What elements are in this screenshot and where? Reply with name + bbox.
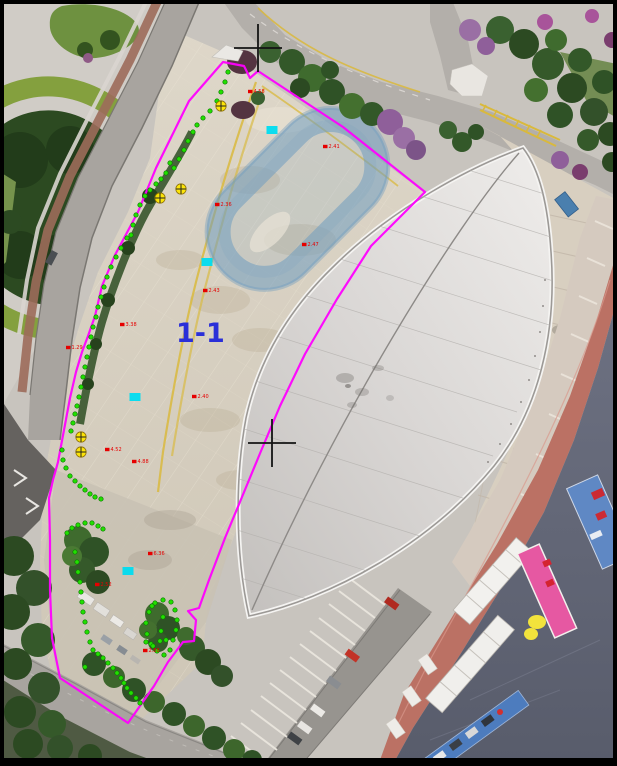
section-label: 1-1 [176, 318, 225, 349]
control-point-marker [155, 193, 165, 203]
survey-dot [119, 246, 123, 250]
survey-dot [164, 638, 168, 642]
survey-dot [79, 385, 83, 389]
survey-dot [83, 665, 87, 669]
survey-dot [125, 236, 129, 240]
survey-dot [173, 608, 177, 612]
survey-dot [81, 375, 85, 379]
survey-dot [88, 492, 92, 496]
survey-dot [105, 275, 109, 279]
cyan-mark [267, 126, 278, 134]
survey-dot [77, 395, 81, 399]
survey-dot [109, 265, 113, 269]
survey-dot [91, 325, 95, 329]
survey-dot [115, 671, 119, 675]
survey-dot [83, 521, 87, 525]
survey-dot [175, 618, 179, 622]
survey-dot [158, 639, 162, 643]
survey-dot [138, 701, 142, 705]
survey-dot [60, 448, 64, 452]
survey-dot [195, 123, 199, 127]
survey-dot [134, 696, 138, 700]
survey-dot [129, 233, 133, 237]
survey-dot [91, 648, 95, 652]
svg-text:2.47: 2.47 [308, 242, 319, 248]
survey-dot [201, 116, 205, 120]
survey-dot [147, 610, 151, 614]
aerial-survey-map[interactable]: 1-1 4.582.362.432.402.412.474.524.883.38… [0, 0, 617, 766]
survey-dot [134, 213, 138, 217]
survey-dot [83, 488, 87, 492]
survey-dot [226, 70, 230, 74]
survey-dot [219, 90, 223, 94]
survey-dot [96, 305, 100, 309]
survey-dot [186, 139, 190, 143]
survey-dot [83, 620, 87, 624]
survey-dot [73, 550, 77, 554]
survey-dot [144, 640, 148, 644]
control-point-marker [76, 432, 86, 442]
survey-dot [111, 666, 115, 670]
survey-dot [75, 560, 79, 564]
survey-dot [106, 661, 110, 665]
svg-text:2.43: 2.43 [209, 288, 220, 294]
survey-dot [61, 458, 65, 462]
survey-dot [76, 570, 80, 574]
svg-text:4.52: 4.52 [111, 447, 122, 453]
survey-dot [99, 295, 103, 299]
svg-text:2.88: 2.88 [149, 648, 160, 654]
survey-dot [70, 526, 74, 530]
survey-dot [90, 521, 94, 525]
survey-dot [125, 686, 129, 690]
svg-text:3.38: 3.38 [126, 322, 137, 328]
survey-dot [78, 580, 82, 584]
survey-dot [161, 615, 165, 619]
survey-dot [69, 429, 73, 433]
survey-dot [94, 315, 98, 319]
survey-dot [65, 531, 69, 535]
survey-dot [159, 177, 163, 181]
survey-dot [154, 182, 158, 186]
survey-dot [87, 345, 91, 349]
survey-dot [168, 648, 172, 652]
control-point-marker [76, 447, 86, 457]
survey-dot [93, 495, 97, 499]
survey-dot [76, 523, 80, 527]
svg-text:4.58: 4.58 [254, 89, 265, 95]
control-point-marker [176, 184, 186, 194]
survey-dot [162, 653, 166, 657]
survey-dot [99, 497, 103, 501]
survey-dot [101, 656, 105, 660]
survey-dot [85, 630, 89, 634]
survey-dot [96, 524, 100, 528]
survey-dot [80, 600, 84, 604]
survey-dot [161, 598, 165, 602]
survey-dot [191, 130, 195, 134]
survey-dot [96, 652, 100, 656]
svg-text:6.36: 6.36 [154, 551, 165, 557]
survey-dot [88, 640, 92, 644]
survey-dot [73, 479, 77, 483]
survey-dot [122, 681, 126, 685]
survey-dot [145, 632, 149, 636]
svg-text:4.88: 4.88 [138, 459, 149, 465]
survey-dot [171, 638, 175, 642]
survey-dot [144, 621, 148, 625]
survey-dot [85, 355, 89, 359]
survey-dot [83, 365, 87, 369]
cyan-mark [123, 567, 134, 575]
survey-dot [169, 600, 173, 604]
svg-text:1.29: 1.29 [72, 345, 83, 351]
survey-dot [177, 157, 181, 161]
survey-dot [79, 590, 83, 594]
svg-text:2.36: 2.36 [221, 202, 232, 208]
survey-dot [68, 474, 72, 478]
survey-dot [64, 466, 68, 470]
cyan-mark [202, 258, 213, 266]
survey-dot [101, 527, 105, 531]
survey-dot [114, 255, 118, 259]
svg-text:2.52: 2.52 [101, 582, 112, 588]
survey-dot [129, 691, 133, 695]
survey-dot [81, 610, 85, 614]
survey-dot [208, 109, 212, 113]
survey-dot [143, 194, 147, 198]
survey-dot [78, 484, 82, 488]
survey-dot [138, 203, 142, 207]
survey-dot [174, 628, 178, 632]
svg-text:2.41: 2.41 [329, 144, 340, 150]
survey-dot [119, 676, 123, 680]
survey-dot [89, 335, 93, 339]
survey-dot [131, 223, 135, 227]
survey-dot [150, 604, 154, 608]
cyan-mark [130, 393, 141, 401]
survey-dot [102, 285, 106, 289]
survey-dot [164, 171, 168, 175]
survey-dot [75, 404, 79, 408]
survey-dot [71, 421, 75, 425]
survey-dot [172, 166, 176, 170]
survey-dot [73, 412, 77, 416]
survey-dot [168, 161, 172, 165]
control-point-marker [216, 101, 226, 111]
survey-dot [223, 80, 227, 84]
survey-dot [182, 148, 186, 152]
svg-text:2.40: 2.40 [198, 394, 209, 400]
survey-dot [148, 188, 152, 192]
survey-dot [159, 629, 163, 633]
